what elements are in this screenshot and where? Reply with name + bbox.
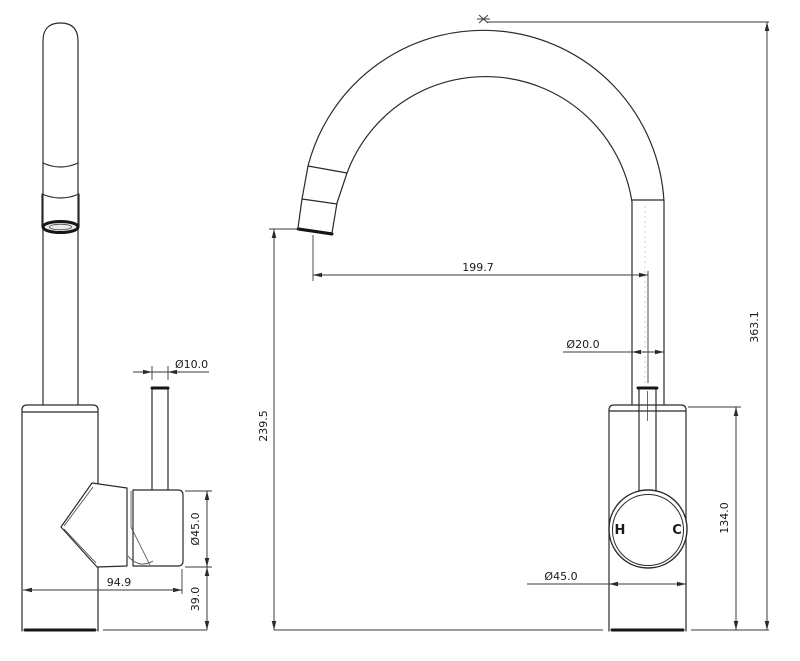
dim-label-body-diameter: Ø45.0 [544,570,577,583]
dim-label-body-depth: 94.9 [107,576,132,589]
dim-label-spout-clearance: 239.5 [257,410,270,442]
faucet-technical-drawing: H C Ø10.0 Ø45.0 39.0 94.9 [0,0,800,661]
dim-label-base-height: 39.0 [189,587,202,612]
dim-label-overall-height: 363.1 [748,311,761,343]
side-handle-block [133,490,183,566]
dim-label-body-height: 134.0 [718,502,731,534]
dim-label-hose-diameter: Ø10.0 [175,358,208,371]
dim-label-riser-diameter: Ø20.0 [566,338,599,351]
dim-label-spout-reach: 199.7 [462,261,494,274]
side-aerator-face [43,222,78,233]
cold-label: C [672,523,682,538]
hot-label: H [615,523,626,538]
dim-label-handle-diameter: Ø45.0 [189,512,202,545]
